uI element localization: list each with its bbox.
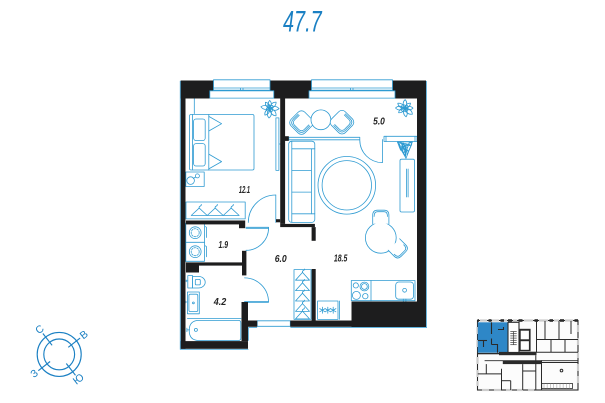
svg-text:5.0: 5.0 xyxy=(373,117,385,128)
svg-text:18.5: 18.5 xyxy=(334,253,348,264)
svg-text:6.0: 6.0 xyxy=(275,254,287,265)
svg-text:4.2: 4.2 xyxy=(213,297,227,308)
svg-text:12.1: 12.1 xyxy=(239,185,250,196)
svg-text:47.7: 47.7 xyxy=(283,6,323,39)
svg-text:1.9: 1.9 xyxy=(219,240,229,251)
